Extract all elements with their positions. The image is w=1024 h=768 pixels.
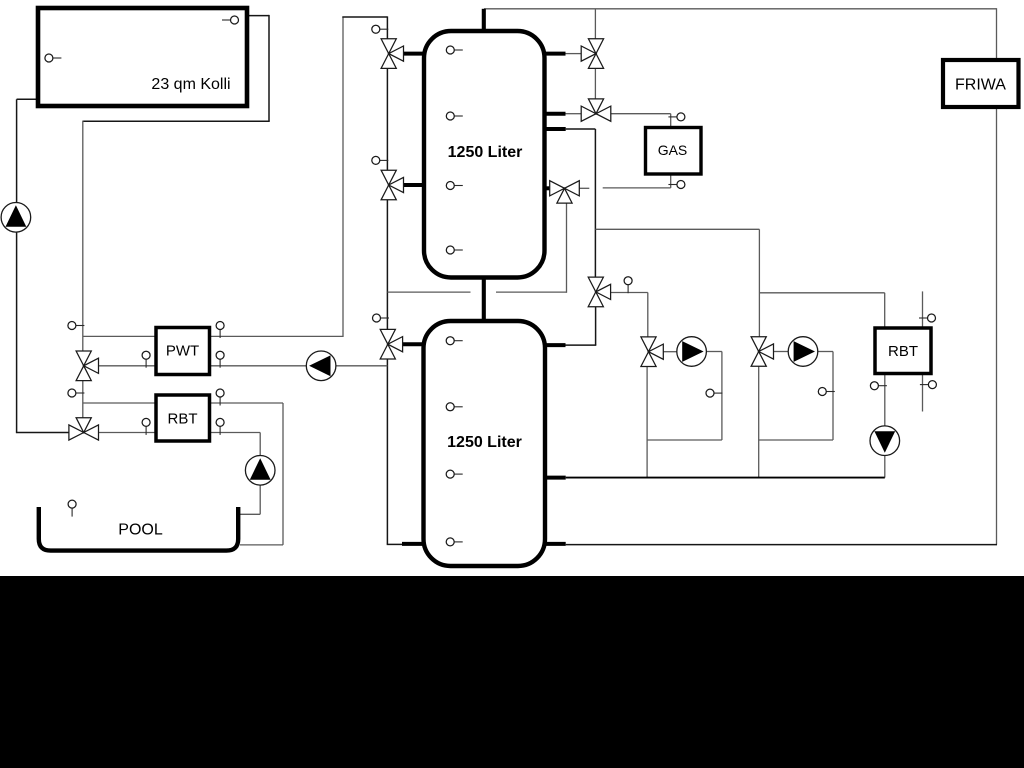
- svg-text:GAS: GAS: [658, 142, 688, 158]
- svg-text:FRIWA: FRIWA: [955, 77, 1006, 94]
- svg-text:RBT: RBT: [168, 411, 198, 428]
- svg-text:1250 Liter: 1250 Liter: [447, 434, 522, 451]
- svg-text:RBT: RBT: [888, 343, 918, 360]
- svg-text:1250 Liter: 1250 Liter: [448, 144, 523, 161]
- svg-text:23 qm Kolli: 23 qm Kolli: [151, 76, 230, 93]
- svg-text:POOL: POOL: [118, 522, 163, 539]
- svg-text:PWT: PWT: [166, 343, 199, 360]
